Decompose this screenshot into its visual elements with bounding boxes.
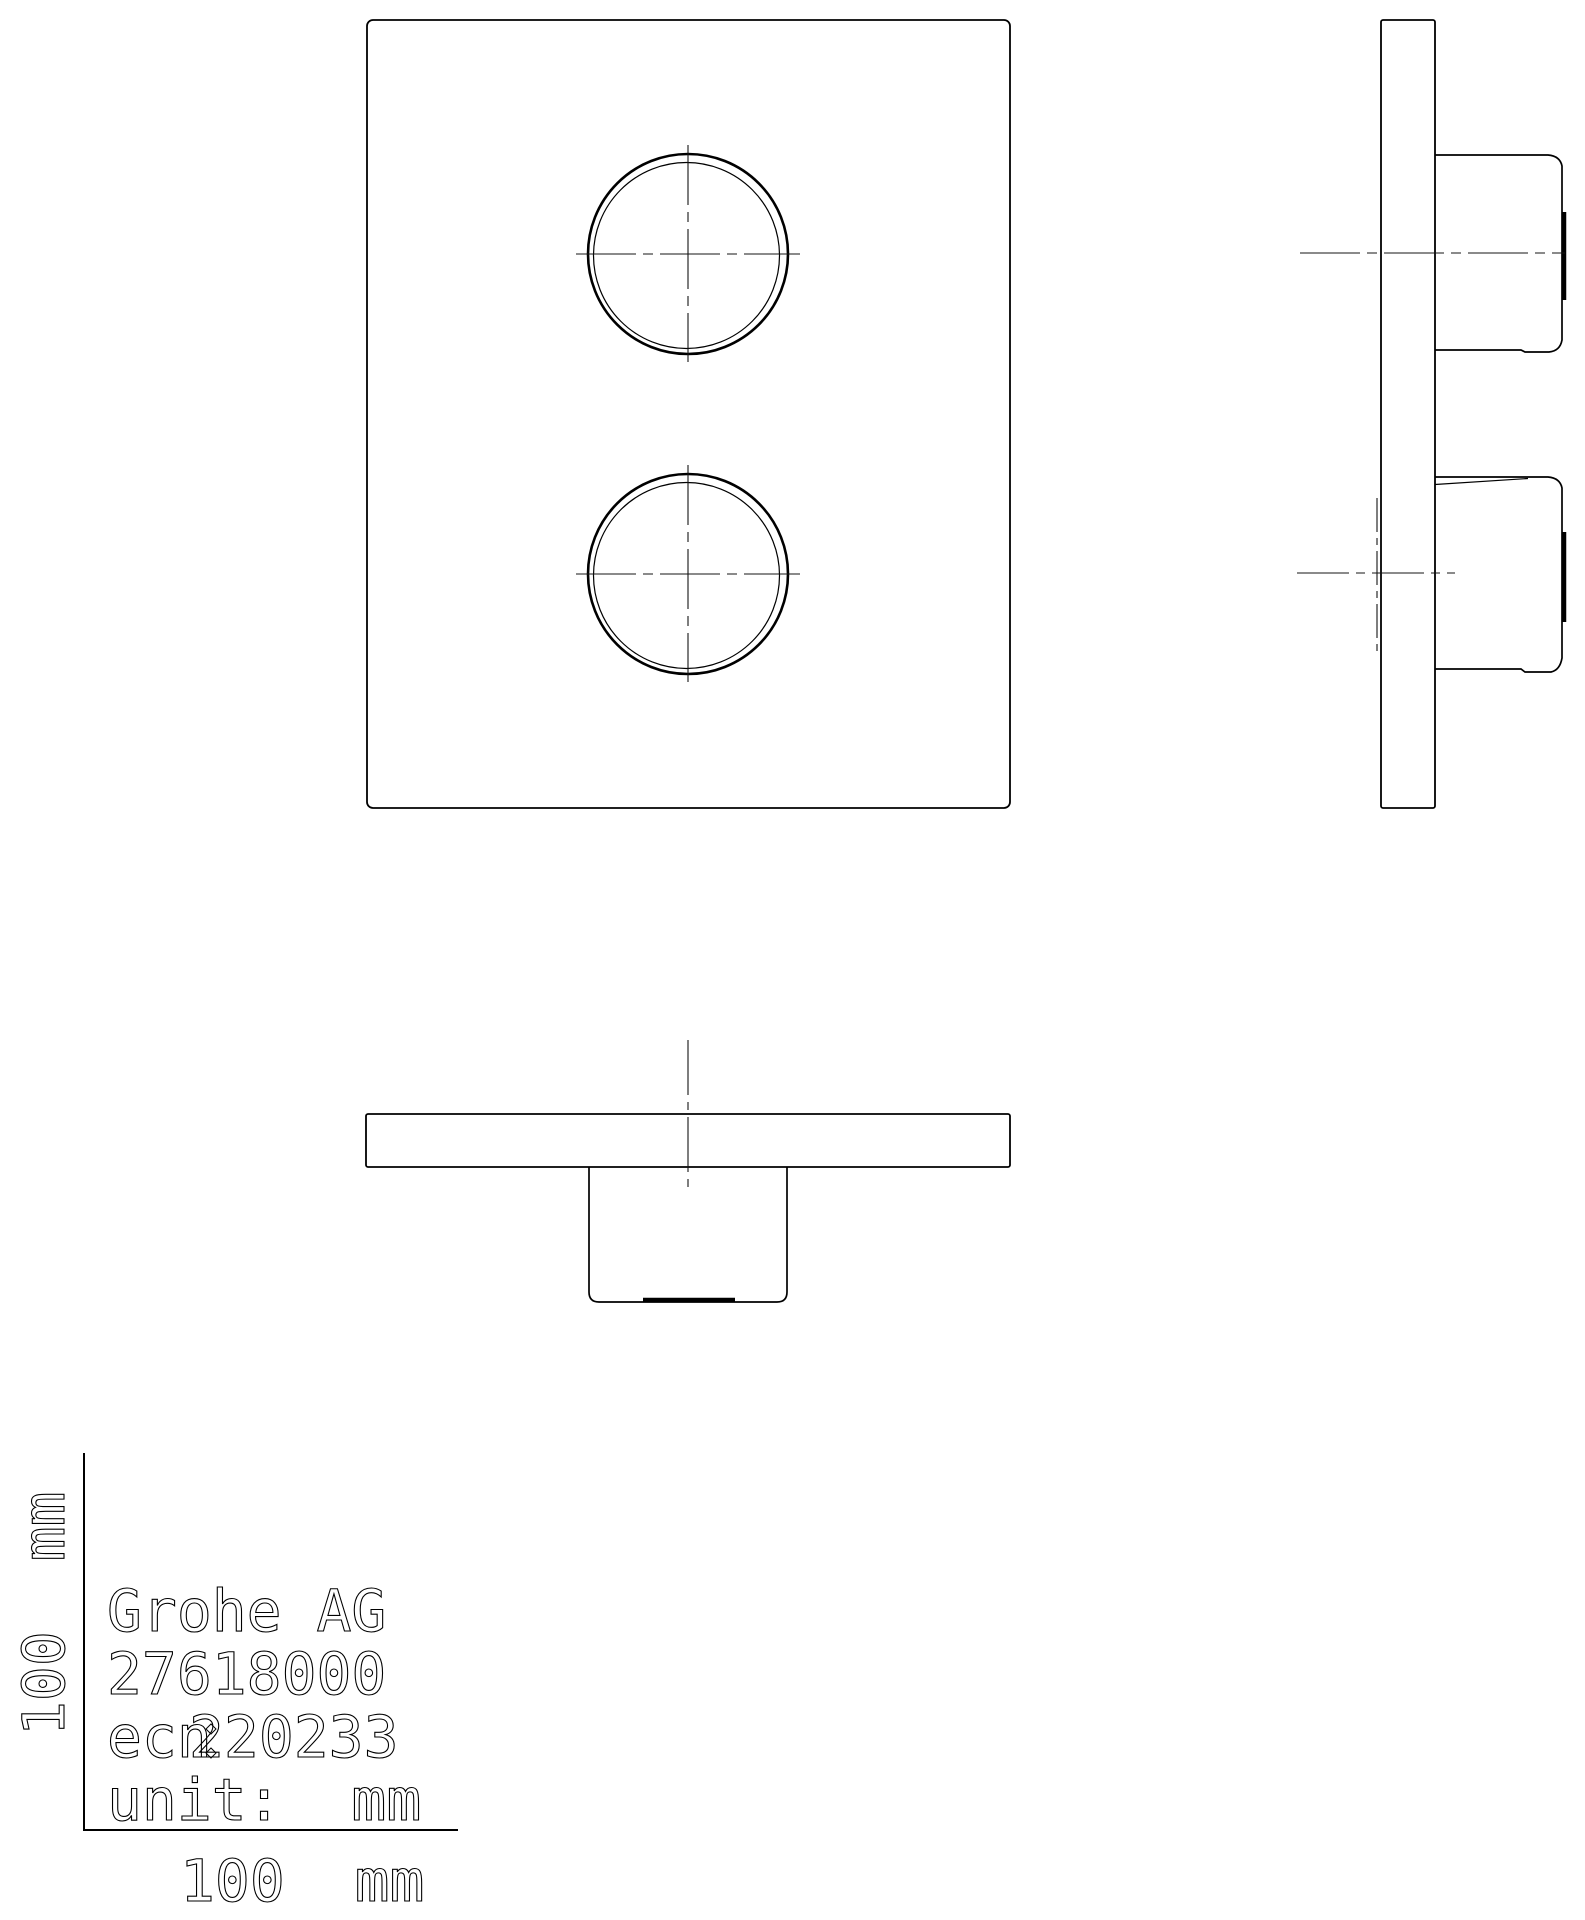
side-knob-bottom-outline xyxy=(1435,477,1562,672)
title-ecn-number-text: 220233 xyxy=(189,1703,399,1771)
side-knob-bottom-chamfer-line xyxy=(1435,479,1528,485)
front-plate-outline xyxy=(367,20,1010,808)
side-plate-outline xyxy=(1381,20,1435,808)
title-product-number-text: 27618000 xyxy=(107,1640,386,1708)
scale-ruler-y-label: 100 mm xyxy=(10,1492,78,1736)
scale-ruler-x-label: 100 mm xyxy=(180,1847,424,1915)
cad-drawing-page: 100 mm100 mmGrohe AG27618000ecn220233uni… xyxy=(0,0,1585,1920)
front-knob-bottom-inner-circle xyxy=(594,483,780,669)
front-knob-top-inner-circle xyxy=(594,163,780,349)
bottom-knob-outline xyxy=(589,1167,787,1302)
cad-drawing-canvas: 100 mm100 mmGrohe AG27618000ecn220233uni… xyxy=(0,0,1585,1920)
title-unit-text: unit: mm xyxy=(107,1766,421,1834)
title-company-text: Grohe AG xyxy=(107,1577,386,1645)
